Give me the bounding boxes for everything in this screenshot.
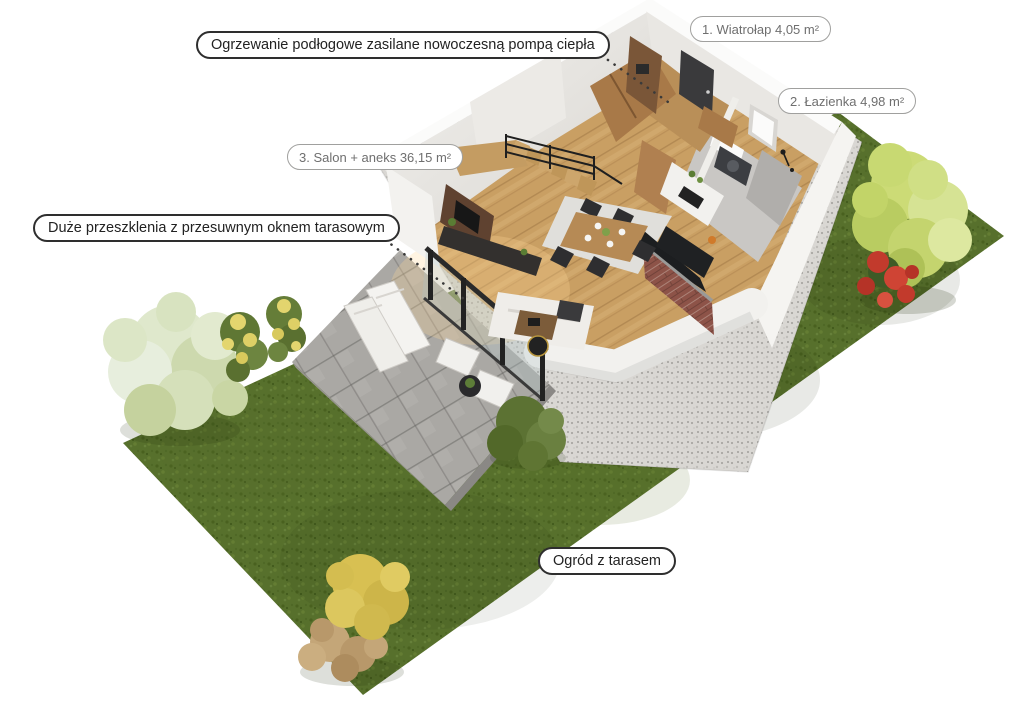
room-label-lazienka: 2. Łazienka 4,98 m² [778,88,916,114]
side-table [528,336,548,356]
floor-plan-page: Ogrzewanie podłogowe zasilane nowoczesną… [0,0,1024,723]
feature-label-garden: Ogród z tarasem [538,547,676,575]
feature-label-glazing: Duże przeszklenia z przesuwnym oknem tar… [33,214,400,242]
room-label-wiatrolap: 1. Wiatrołap 4,05 m² [690,16,831,42]
room-label-salon-aneks: 3. Salon + aneks 36,15 m² [287,144,463,170]
feature-label-heating: Ogrzewanie podłogowe zasilane nowoczesną… [196,31,610,59]
